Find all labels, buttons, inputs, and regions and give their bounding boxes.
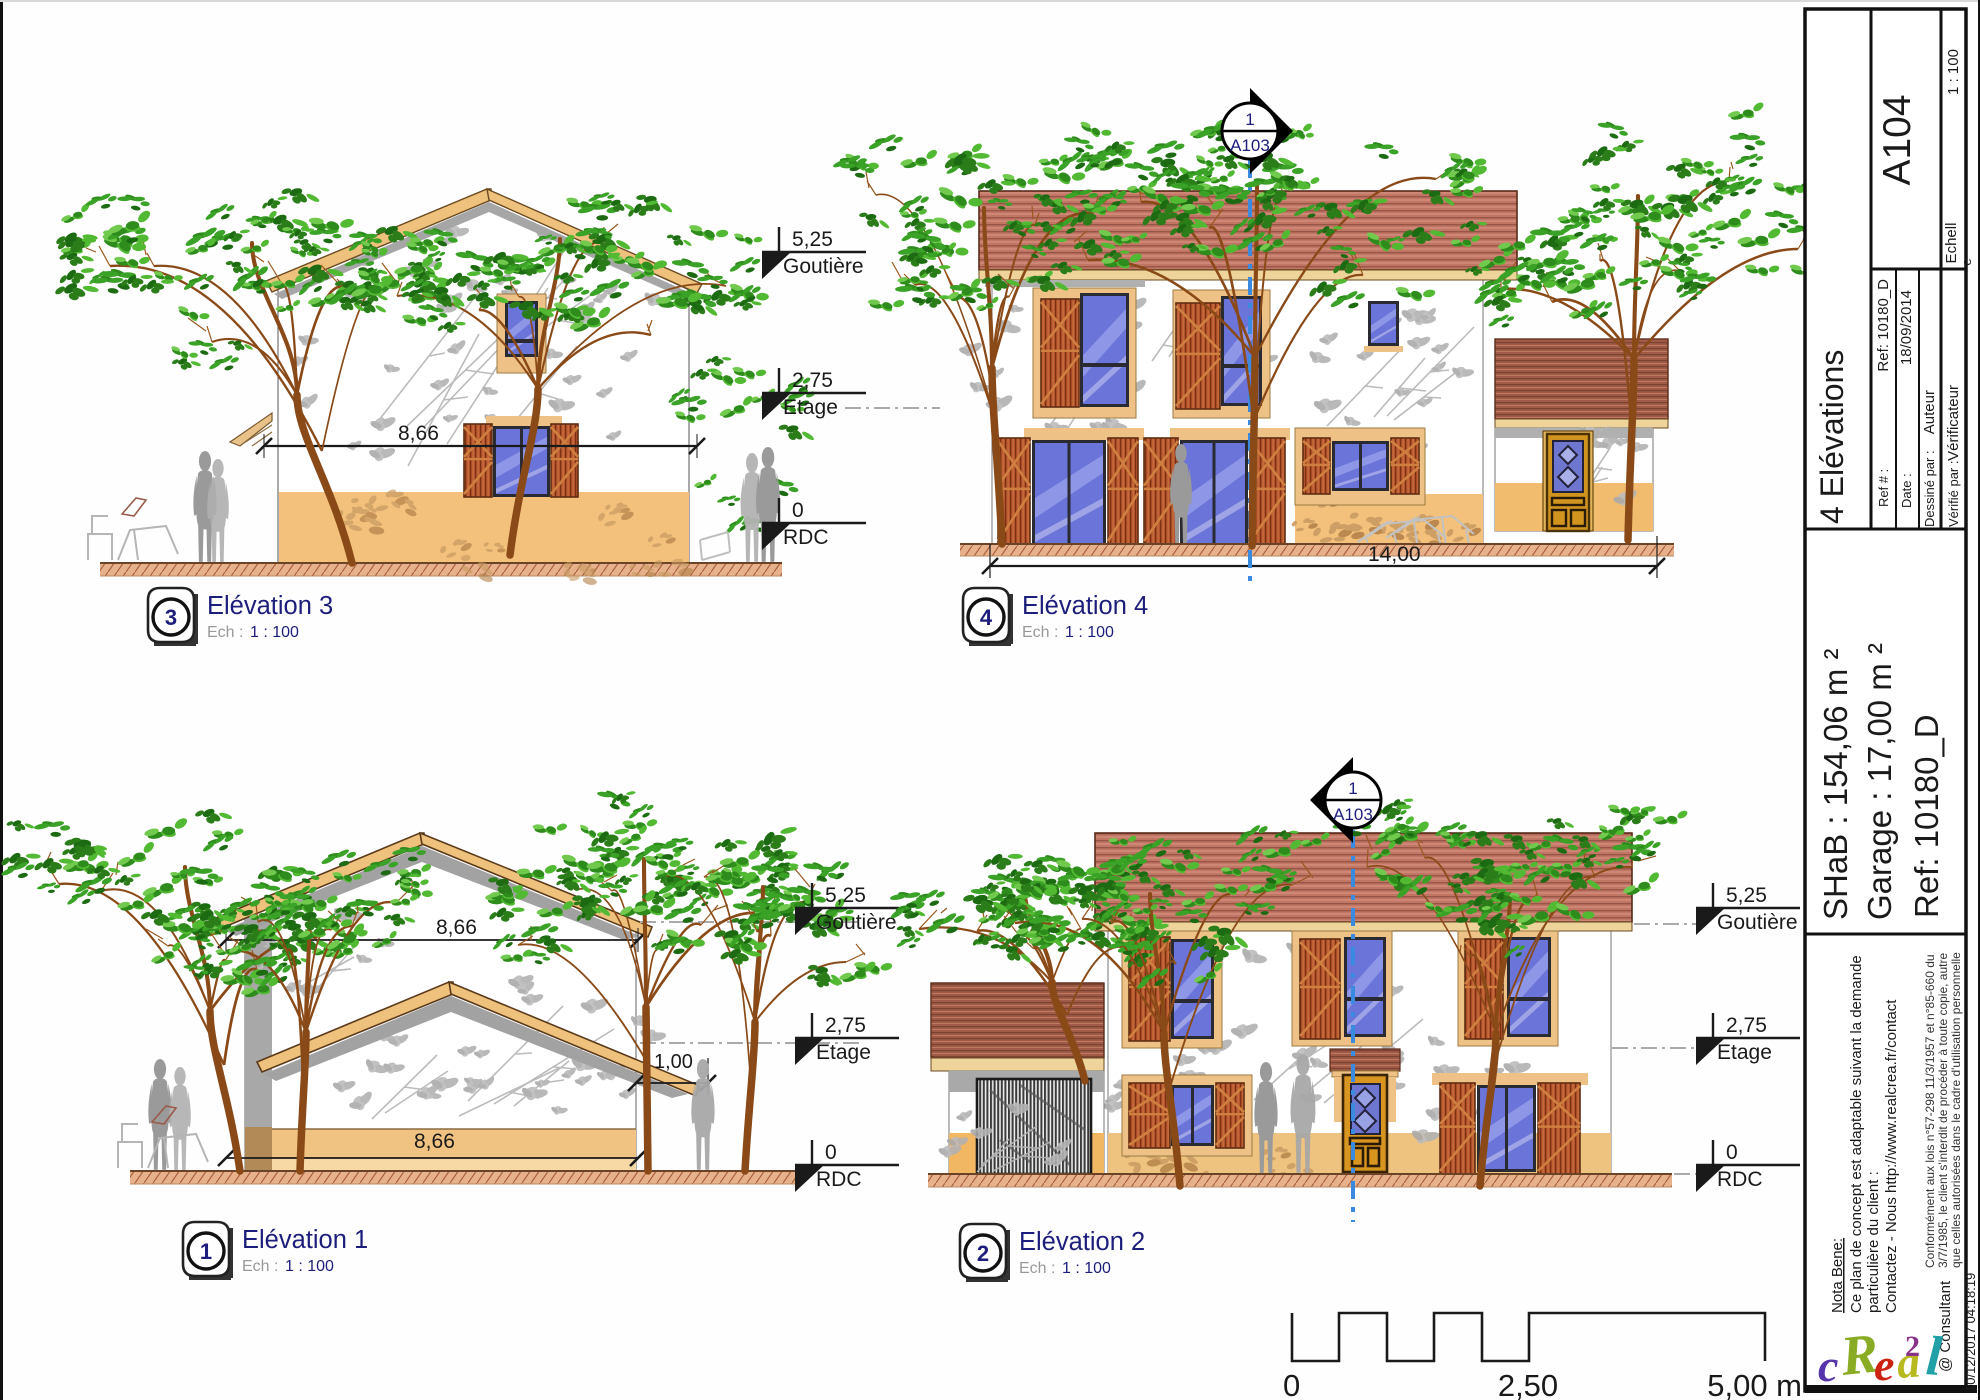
svg-text:Conformément aux lois n°57-298: Conformément aux lois n°57-298 11/3/1957…	[1923, 954, 1937, 1268]
svg-text:14,00: 14,00	[1368, 543, 1421, 566]
svg-text:1,00: 1,00	[654, 1051, 693, 1073]
svg-text:Ref: 10180_D: Ref: 10180_D	[1875, 279, 1892, 372]
svg-text:e: e	[1874, 1339, 1894, 1390]
svg-text:2,75: 2,75	[825, 1014, 866, 1037]
svg-text:Garage : 17,00 m ²: Garage : 17,00 m ²	[1861, 643, 1898, 920]
svg-text:Auteur: Auteur	[1921, 390, 1938, 434]
svg-text:Ech :: Ech :	[1019, 1260, 1055, 1277]
svg-text:Ech :: Ech :	[1022, 624, 1058, 641]
svg-text:A103: A103	[1230, 136, 1270, 155]
svg-text:2: 2	[1905, 1330, 1920, 1363]
svg-text:Nota Bene:: Nota Bene:	[1829, 1238, 1846, 1313]
svg-text:Echell: Echell	[1943, 223, 1960, 264]
svg-text:Vérifié par :: Vérifié par :	[1946, 461, 1961, 527]
svg-text:4 Elévations: 4 Elévations	[1814, 350, 1850, 524]
svg-text:RDC: RDC	[783, 526, 829, 549]
svg-text:Ce plan de concept est adaptab: Ce plan de concept est adaptable suivant…	[1848, 955, 1865, 1313]
svg-text:5,25: 5,25	[825, 884, 866, 907]
svg-text:Dessiné par :: Dessiné par :	[1922, 450, 1937, 527]
svg-text:4: 4	[980, 605, 993, 630]
svg-text:1: 1	[1245, 110, 1254, 129]
svg-text:3/7/1985, le client s'interdit: 3/7/1985, le client s'interdit de procéd…	[1936, 953, 1950, 1268]
svg-text:10/12/2017 04:18:19: 10/12/2017 04:18:19	[1963, 1273, 1978, 1392]
svg-text:1 : 100: 1 : 100	[1062, 1260, 1111, 1277]
svg-text:Ech :: Ech :	[242, 1258, 278, 1275]
svg-text:1: 1	[1348, 779, 1357, 798]
svg-text:Ref: 10180_D: Ref: 10180_D	[1908, 714, 1945, 918]
svg-text:8,66: 8,66	[398, 422, 439, 445]
svg-text:3: 3	[165, 605, 177, 630]
svg-text:Goutière: Goutière	[1717, 911, 1798, 934]
svg-text:2,75: 2,75	[792, 369, 833, 392]
svg-text:1 : 100: 1 : 100	[1065, 624, 1114, 641]
svg-text:Goutière: Goutière	[783, 255, 864, 278]
svg-text:Date :: Date :	[1899, 473, 1914, 508]
svg-text:0: 0	[825, 1141, 837, 1164]
svg-text:2,50: 2,50	[1498, 1368, 1558, 1400]
svg-text:SHaB : 154,06 m ²: SHaB : 154,06 m ²	[1817, 649, 1854, 920]
svg-text:18/09/2014: 18/09/2014	[1898, 290, 1915, 365]
svg-text:Vérificateur: Vérificateur	[1945, 385, 1962, 461]
svg-text:Elévation 1: Elévation 1	[242, 1226, 368, 1254]
svg-text:Elévation 2: Elévation 2	[1019, 1228, 1145, 1256]
svg-text:1 : 100: 1 : 100	[250, 624, 299, 641]
svg-text:1: 1	[200, 1239, 212, 1264]
svg-text:RDC: RDC	[1717, 1168, 1763, 1191]
svg-text:5,00 m: 5,00 m	[1707, 1368, 1802, 1400]
svg-text:Etage: Etage	[816, 1041, 871, 1064]
svg-text:Contactez - Nous http://www.re: Contactez - Nous http://www.realcrea.fr/…	[1883, 999, 1900, 1313]
svg-text:Goutière: Goutière	[816, 911, 897, 934]
svg-text:1 : 100: 1 : 100	[285, 1258, 334, 1275]
svg-text:Elévation 4: Elévation 4	[1022, 592, 1148, 620]
svg-text:2,75: 2,75	[1726, 1014, 1767, 1037]
svg-text:particulière du client :: particulière du client :	[1865, 1171, 1882, 1313]
svg-text:2: 2	[977, 1241, 989, 1266]
svg-text:c: c	[1818, 1340, 1838, 1391]
svg-text:Etage: Etage	[1717, 1041, 1772, 1064]
svg-text:que celles autorisées dans le: que celles autorisées dans le cadre d'ut…	[1949, 952, 1963, 1268]
svg-text:5,25: 5,25	[792, 228, 833, 251]
svg-text:0: 0	[1283, 1368, 1300, 1400]
svg-text:Ech :: Ech :	[207, 624, 243, 641]
svg-text:0: 0	[792, 499, 804, 522]
svg-text:RDC: RDC	[816, 1168, 862, 1191]
svg-text:A104: A104	[1876, 94, 1919, 185]
svg-text:0: 0	[1726, 1141, 1738, 1164]
svg-text:Ref # :: Ref # :	[1876, 469, 1891, 507]
svg-text:Etage: Etage	[783, 396, 838, 419]
svg-text:e: e	[1959, 258, 1974, 265]
svg-text:1 : 100: 1 : 100	[1945, 49, 1962, 95]
svg-text:5,25: 5,25	[1726, 884, 1767, 907]
svg-text:Elévation 3: Elévation 3	[207, 592, 333, 620]
svg-text:A103: A103	[1333, 805, 1373, 824]
svg-text:8,66: 8,66	[414, 1130, 455, 1153]
svg-text:8,66: 8,66	[436, 916, 477, 939]
